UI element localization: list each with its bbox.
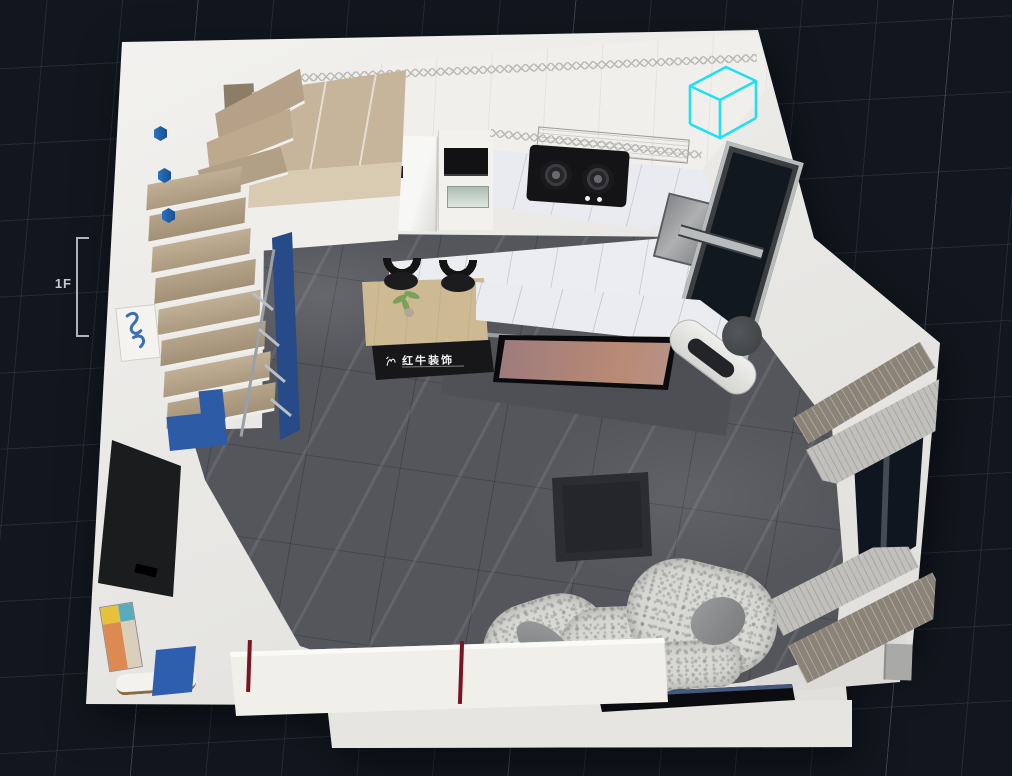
plant-pot [404,308,414,317]
floor-bracket-tick [76,237,89,239]
oven-column-cabinet[interactable] [438,130,493,230]
floor-label: 1F [46,276,72,291]
brand-sign-content: 红牛装饰 [385,347,485,373]
bar-stool-seat [441,274,475,292]
floor-bracket-tick [76,335,89,337]
blue-bench-arm [198,389,225,421]
glass-shelf [447,186,489,208]
tower-fan-top [722,316,762,356]
gray-stool[interactable] [883,644,912,681]
blue-squiggle-art[interactable] [115,304,160,362]
squiggle-icon [116,305,157,358]
cooktop-knob [597,197,602,202]
bull-logo-icon [385,354,398,367]
bar-stool-seat [384,272,418,290]
microwave[interactable] [444,148,488,176]
floor-bracket [76,237,78,337]
design-viewport[interactable]: 红牛装饰 [0,0,1012,776]
selection-cube[interactable] [668,58,762,148]
cooktop-knob [585,196,590,201]
